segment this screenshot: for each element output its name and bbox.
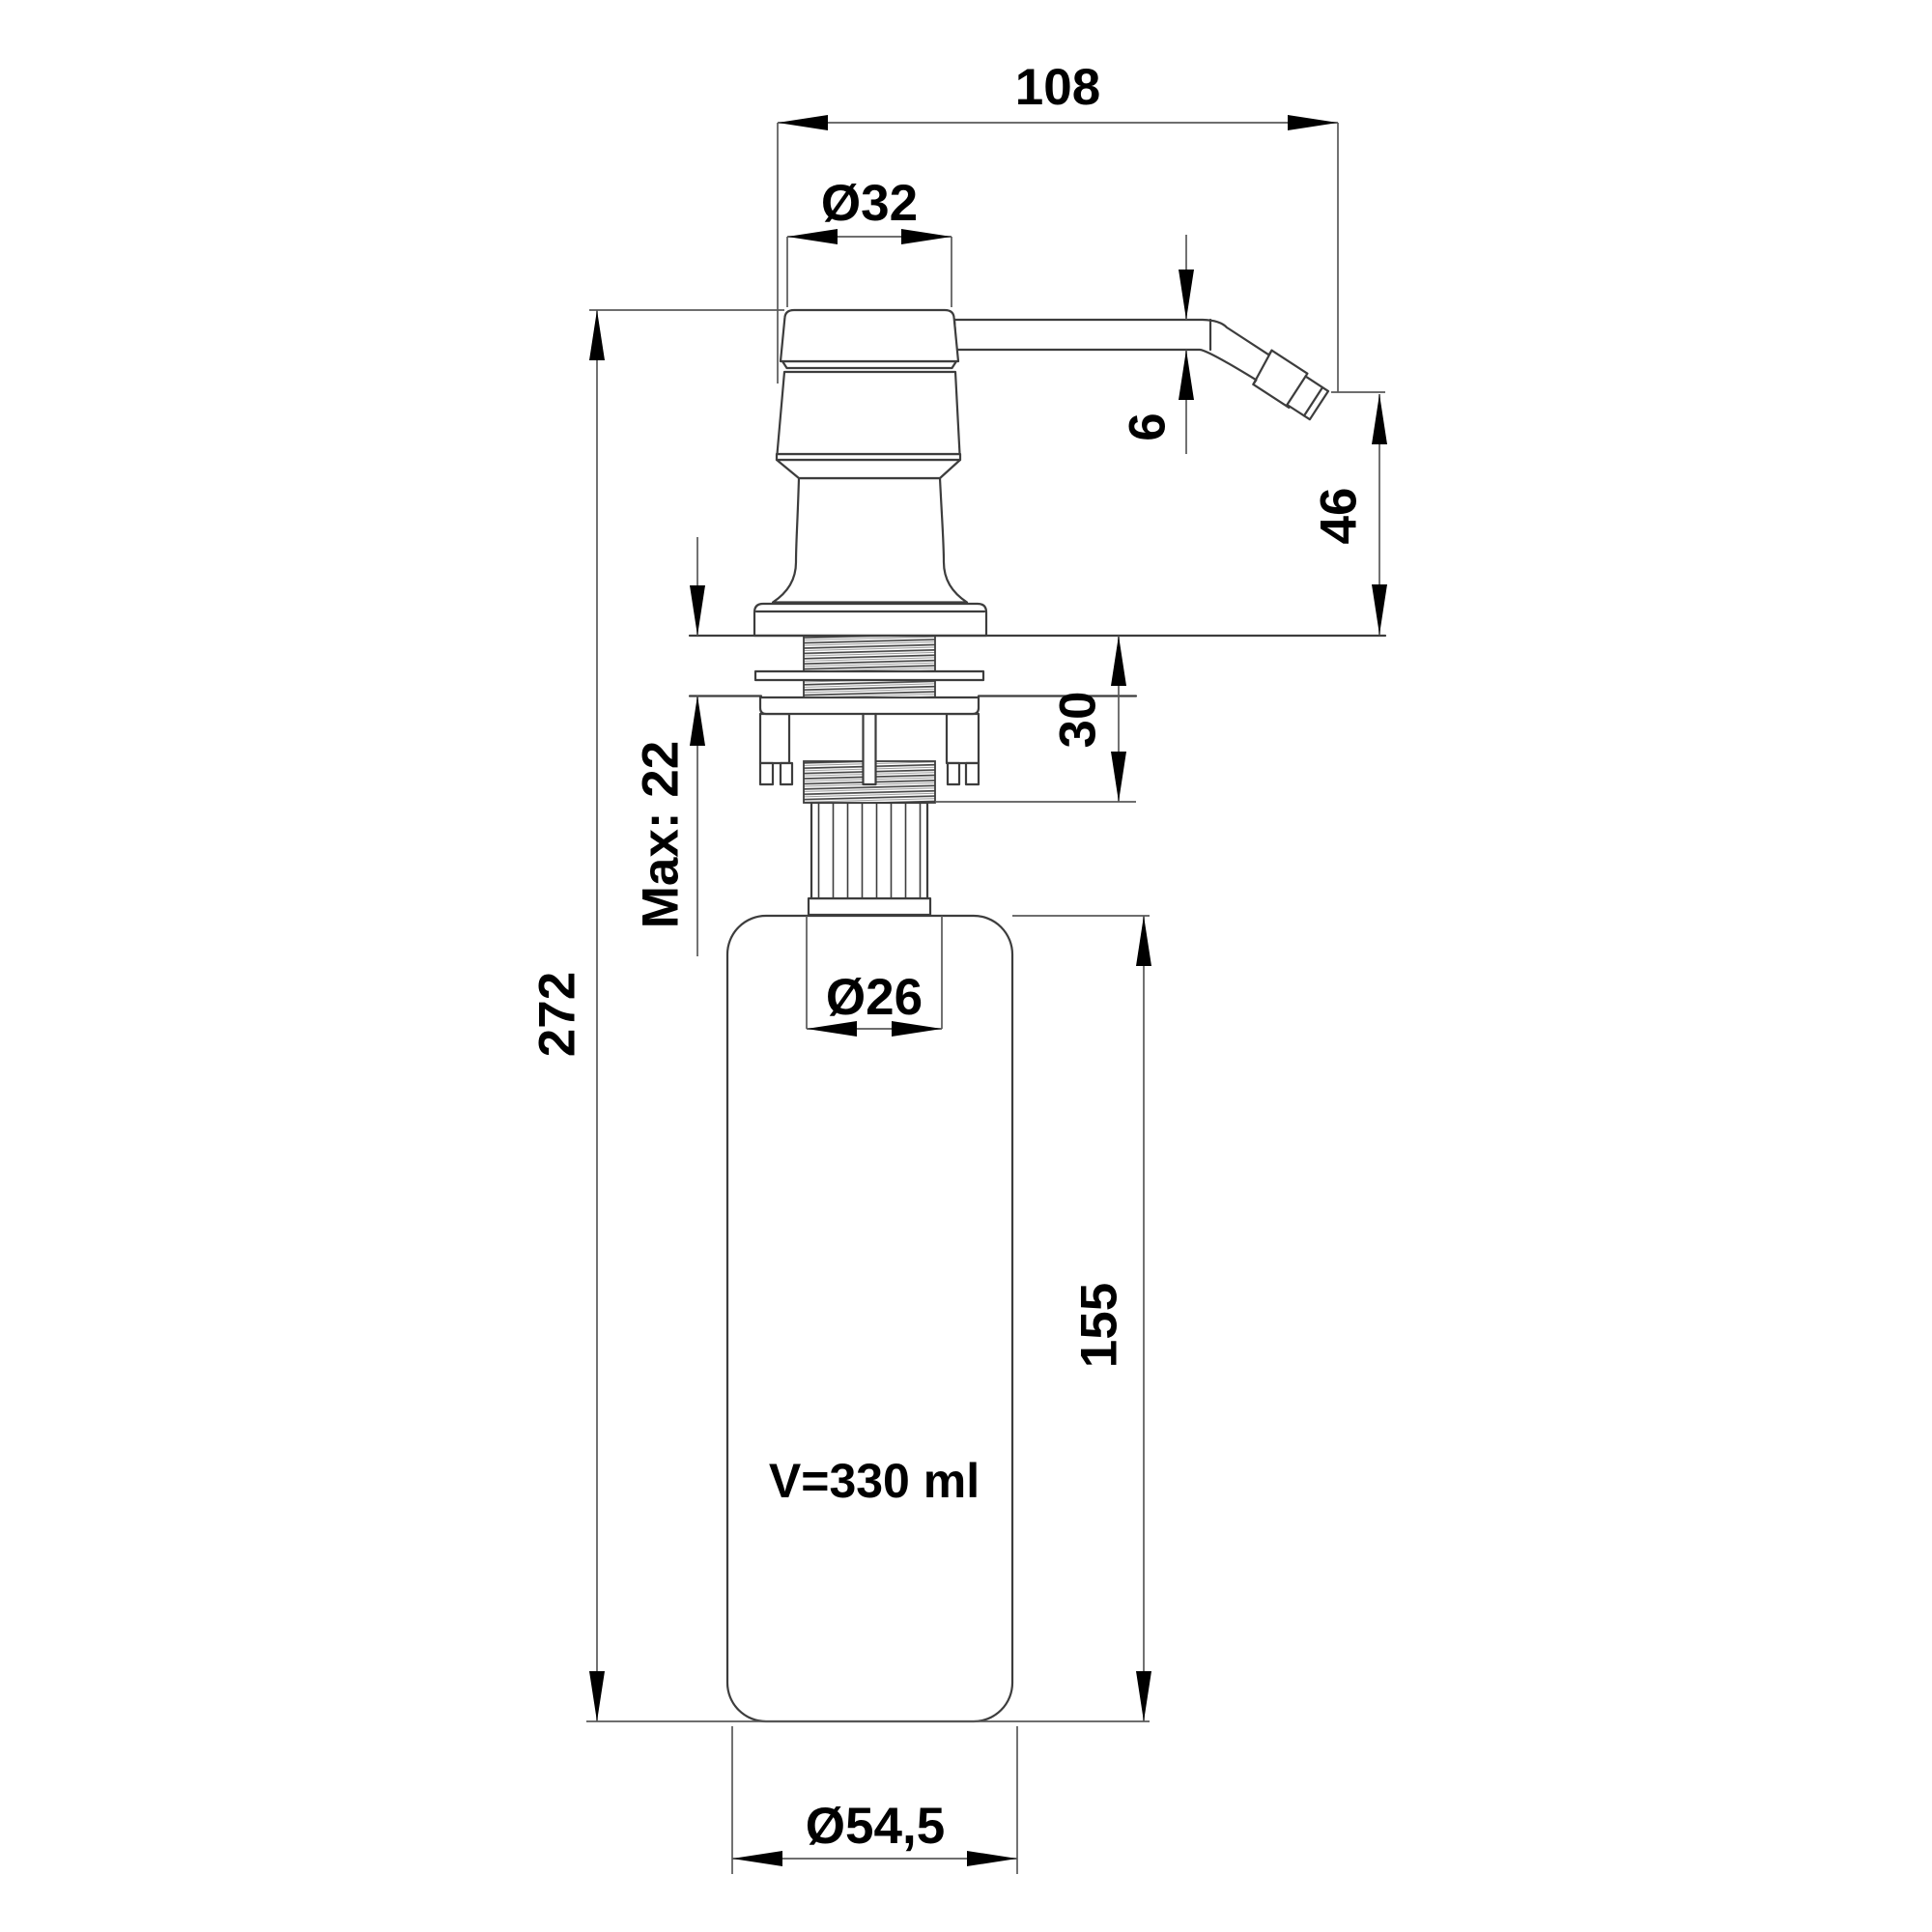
soap-dispenser-drawing: 108 Ø32 6 46 [0,0,1932,1932]
countertop [690,636,1385,696]
dim-label-46: 46 [1311,488,1368,545]
locknut-slot-mask [864,720,876,784]
threaded-shank [755,636,983,697]
pump-head-cap [781,310,958,368]
locknut [760,697,979,784]
locknut-foot [948,763,959,784]
locknut-foot [966,763,979,784]
dim-label-272: 272 [529,972,586,1057]
cap-body [781,310,958,361]
dip-tube-adapter [809,803,930,915]
locknut-foot [760,763,773,784]
volume-label: V=330 ml [769,1454,980,1508]
dim-label-30: 30 [1050,692,1107,749]
dispenser-object [690,310,1385,1721]
dim-bottle-height: 155 [1012,916,1151,1721]
dim-label-o545: Ø54,5 [806,1798,945,1855]
dim-bottle-diameter: Ø54,5 [732,1726,1017,1874]
adapter-ribbed-section [811,803,927,898]
washer [755,671,983,680]
adapter-collar [809,898,930,915]
pump-base [754,478,986,636]
dim-spout-height: 46 [1311,392,1388,635]
dim-label-o26: Ø26 [826,969,923,1026]
bell-body [778,372,960,454]
upper-threads [804,680,935,697]
locknut-left-wall [760,714,789,763]
dim-label-108: 108 [1015,59,1100,116]
mounting-flange [754,604,986,636]
locknut-foot [781,763,792,784]
pump-bell [777,372,960,478]
upper-threads [804,636,935,671]
dim-label-o32: Ø32 [821,175,918,232]
locknut-right-wall [947,714,979,763]
locknut-top-plate [760,697,979,714]
bottle-container [727,916,1012,1721]
technical-drawing-page: 108 Ø32 6 46 [0,0,1932,1932]
dim-label-max22: Max: 22 [633,741,690,928]
dim-label-155: 155 [1071,1283,1128,1368]
dim-label-6: 6 [1120,412,1177,440]
bottle-body [727,916,1012,1721]
spout [954,320,1328,419]
dim-max-counter-thickness: Max: 22 [633,537,706,956]
bell-shoulder [777,460,960,478]
dim-head-diameter: Ø32 [787,175,952,307]
cone-neck [773,478,967,603]
spout-tube [954,320,1328,419]
